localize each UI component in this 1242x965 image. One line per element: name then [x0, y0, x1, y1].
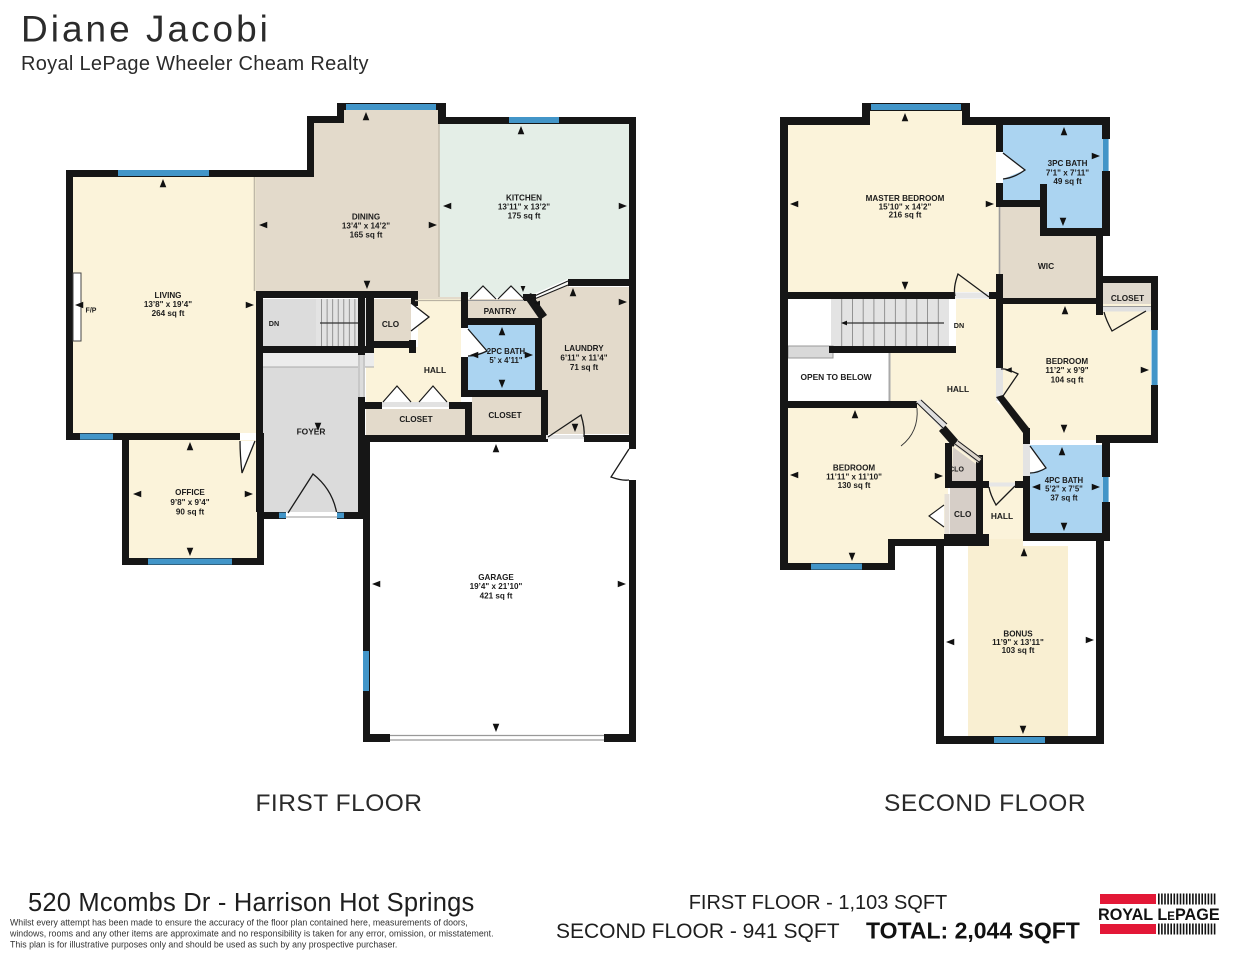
- svg-text:90 sq ft: 90 sq ft: [176, 508, 205, 517]
- svg-text:2PC BATH: 2PC BATH: [487, 347, 526, 356]
- svg-text:5’ x 4’11": 5’ x 4’11": [489, 356, 522, 365]
- svg-text:FIRST FLOOR - 1,103 SQFT: FIRST FLOOR - 1,103 SQFT: [689, 892, 948, 914]
- svg-text:WIC: WIC: [1038, 261, 1054, 271]
- svg-text:FIRST FLOOR: FIRST FLOOR: [255, 790, 422, 817]
- svg-text:175 sq ft: 175 sq ft: [508, 212, 541, 221]
- svg-text:ROYAL LEPAGE: ROYAL LEPAGE: [1098, 906, 1220, 924]
- svg-text:PANTRY: PANTRY: [484, 307, 517, 316]
- svg-text:GARAGE: GARAGE: [478, 573, 514, 582]
- svg-text:OPEN TO BELOW: OPEN TO BELOW: [800, 372, 871, 382]
- svg-text:FOYER: FOYER: [297, 427, 326, 437]
- svg-text:SECOND FLOOR: SECOND FLOOR: [884, 790, 1086, 817]
- svg-text:19’4" x 21’10": 19’4" x 21’10": [470, 582, 523, 591]
- svg-text:Whilst every attempt has been: Whilst every attempt has been made to en…: [10, 918, 468, 928]
- svg-text:6’11" x 11’4": 6’11" x 11’4": [560, 354, 607, 363]
- svg-text:520 Mcombs Dr - Harrison Hot S: 520 Mcombs Dr - Harrison Hot Springs: [28, 889, 475, 917]
- svg-text:DN: DN: [954, 321, 964, 330]
- svg-text:49 sq ft: 49 sq ft: [1053, 177, 1082, 186]
- svg-text:130 sq ft: 130 sq ft: [838, 481, 871, 490]
- svg-text:13’11" x 13’2": 13’11" x 13’2": [498, 203, 550, 212]
- svg-text:104 sq ft: 104 sq ft: [1051, 376, 1084, 385]
- svg-text:OFFICE: OFFICE: [175, 488, 205, 497]
- svg-text:CLOSET: CLOSET: [399, 415, 432, 424]
- svg-text:3PC BATH: 3PC BATH: [1048, 159, 1088, 168]
- svg-text:BEDROOM: BEDROOM: [1046, 357, 1089, 366]
- svg-text:13’4" x 14’2": 13’4" x 14’2": [342, 222, 390, 231]
- svg-text:71 sq ft: 71 sq ft: [570, 363, 599, 372]
- svg-text:Diane Jacobi: Diane Jacobi: [21, 9, 271, 50]
- svg-text:13’8" x 19’4": 13’8" x 19’4": [144, 300, 192, 309]
- svg-text:165 sq ft: 165 sq ft: [350, 231, 383, 240]
- svg-text:LIVING: LIVING: [155, 291, 182, 300]
- svg-text:CLO: CLO: [954, 510, 972, 519]
- svg-text:421 sq ft: 421 sq ft: [480, 592, 513, 601]
- svg-text:HALL: HALL: [947, 384, 969, 394]
- svg-text:11’2" x 9’9": 11’2" x 9’9": [1045, 366, 1088, 375]
- svg-text:TOTAL: 2,044 SQFT: TOTAL: 2,044 SQFT: [866, 918, 1080, 944]
- svg-text:HALL: HALL: [424, 365, 446, 375]
- svg-text:CLOSET: CLOSET: [488, 411, 521, 420]
- svg-text:103 sq ft: 103 sq ft: [1002, 646, 1035, 655]
- svg-text:264 sq ft: 264 sq ft: [152, 309, 185, 318]
- svg-text:LAUNDRY: LAUNDRY: [564, 344, 604, 353]
- svg-text:SECOND FLOOR - 941 SQFT: SECOND FLOOR - 941 SQFT: [556, 920, 840, 943]
- svg-text:KITCHEN: KITCHEN: [506, 194, 542, 203]
- svg-text:5’2" x 7’5": 5’2" x 7’5": [1045, 485, 1083, 494]
- svg-text:CLO: CLO: [382, 320, 400, 329]
- svg-text:CLO: CLO: [949, 467, 964, 474]
- svg-text:CLOSET: CLOSET: [1111, 294, 1144, 303]
- svg-text:216 sq ft: 216 sq ft: [889, 211, 922, 220]
- svg-text:DN: DN: [269, 319, 279, 328]
- svg-text:BEDROOM: BEDROOM: [833, 464, 876, 473]
- svg-text:9’8" x 9’4": 9’8" x 9’4": [170, 498, 209, 507]
- svg-text:windows, rooms and any other i: windows, rooms and any other items are a…: [9, 929, 494, 939]
- svg-text:This plan is for illustrative: This plan is for illustrative purposes o…: [10, 940, 397, 950]
- svg-text:Royal LePage Wheeler Cheam Rea: Royal LePage Wheeler Cheam Realty: [21, 53, 369, 75]
- svg-text:F/P: F/P: [86, 308, 97, 315]
- svg-text:HALL: HALL: [991, 511, 1013, 521]
- svg-text:37 sq ft: 37 sq ft: [1050, 494, 1078, 503]
- svg-text:DINING: DINING: [352, 213, 380, 222]
